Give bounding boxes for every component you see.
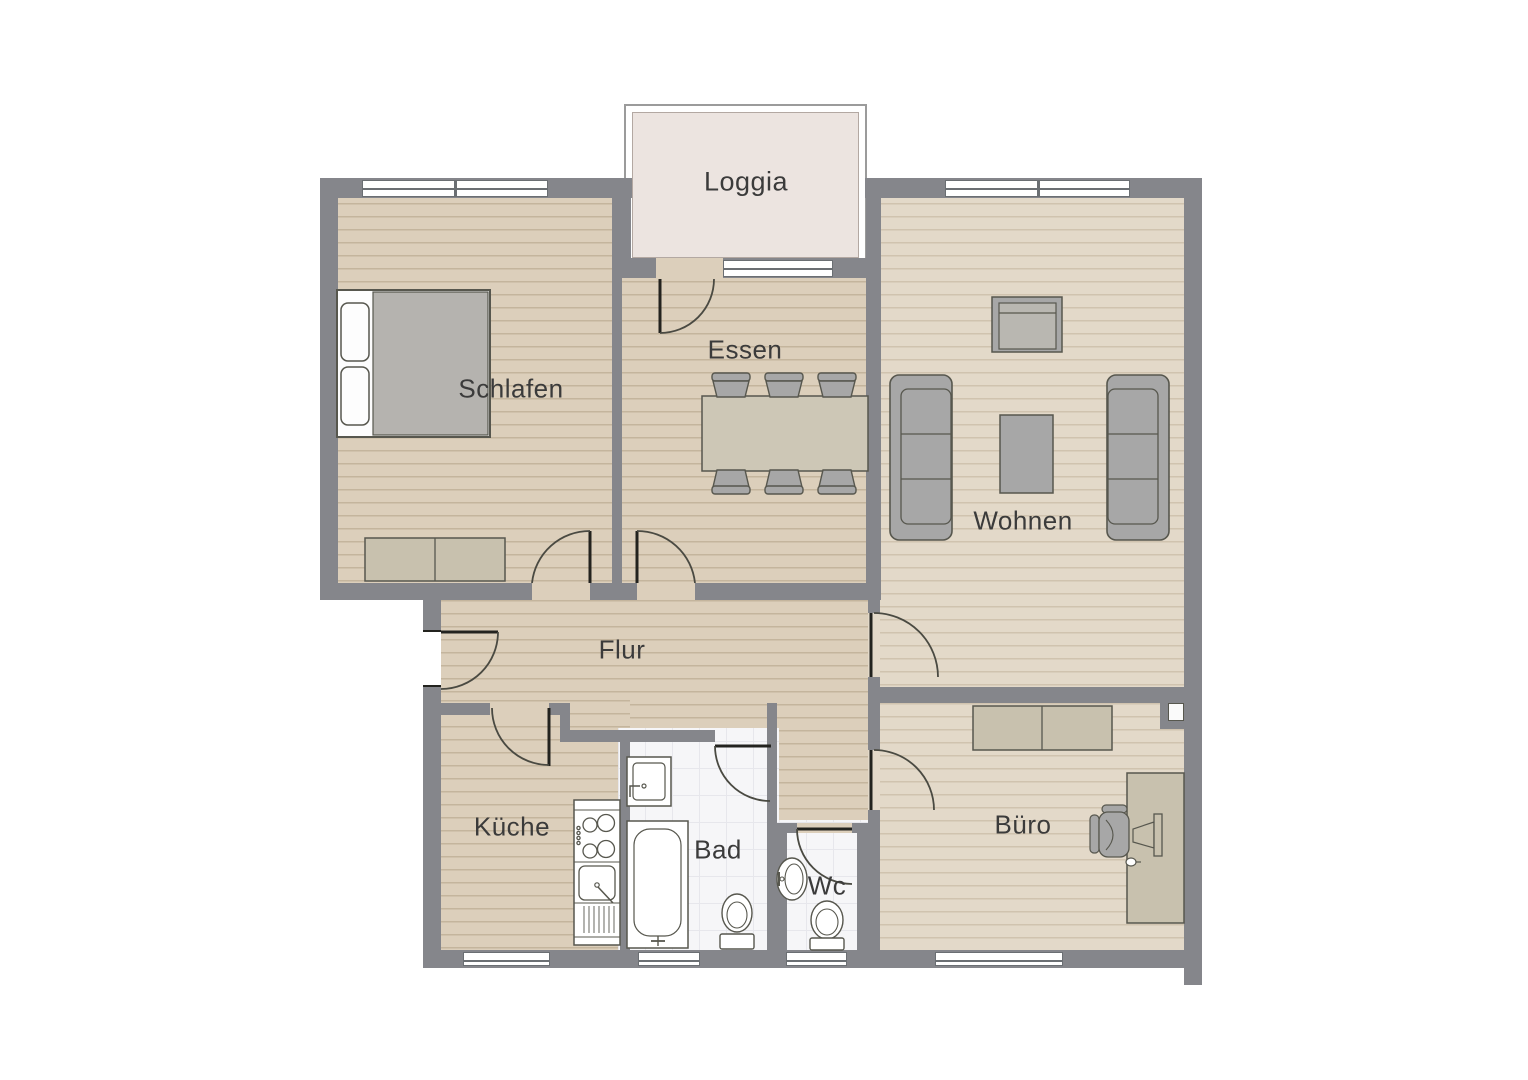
- room-label-loggia: Loggia: [704, 167, 788, 198]
- kitchen-sink-icon: [579, 866, 615, 903]
- room-label-essen: Essen: [708, 335, 783, 366]
- dining-table: [702, 396, 868, 471]
- dresser: [365, 538, 505, 581]
- floorplan-canvas: Loggia Schlafen Essen Wohnen Flur Küche …: [0, 0, 1528, 1080]
- door-swing-arcs: [441, 279, 938, 884]
- sideboard: [973, 706, 1112, 750]
- room-label-bad: Bad: [694, 835, 742, 866]
- plan-graphics: [0, 0, 1528, 1080]
- sofa-right: [1107, 375, 1169, 540]
- toilet-icon-wc: [810, 901, 844, 950]
- bathtub-icon: [627, 821, 688, 948]
- toilet-icon-bad: [720, 894, 754, 949]
- bed: [337, 290, 490, 437]
- wc-sink-icon: [777, 858, 807, 900]
- bathroom-sink-icon: [627, 757, 671, 806]
- room-label-schlafen: Schlafen: [458, 374, 563, 405]
- pillow: [341, 367, 369, 425]
- room-label-wc: Wc: [808, 871, 847, 902]
- kitchen-unit: [574, 800, 620, 945]
- office-chair: [1090, 805, 1129, 857]
- room-label-buero: Büro: [995, 810, 1052, 841]
- room-label-flur: Flur: [599, 635, 646, 666]
- pillow: [341, 303, 369, 361]
- sofa-left: [890, 375, 952, 540]
- room-label-wohnen: Wohnen: [973, 506, 1072, 537]
- room-label-kueche: Küche: [474, 812, 550, 843]
- tv-board: [992, 297, 1062, 352]
- coffee-table: [1000, 415, 1053, 493]
